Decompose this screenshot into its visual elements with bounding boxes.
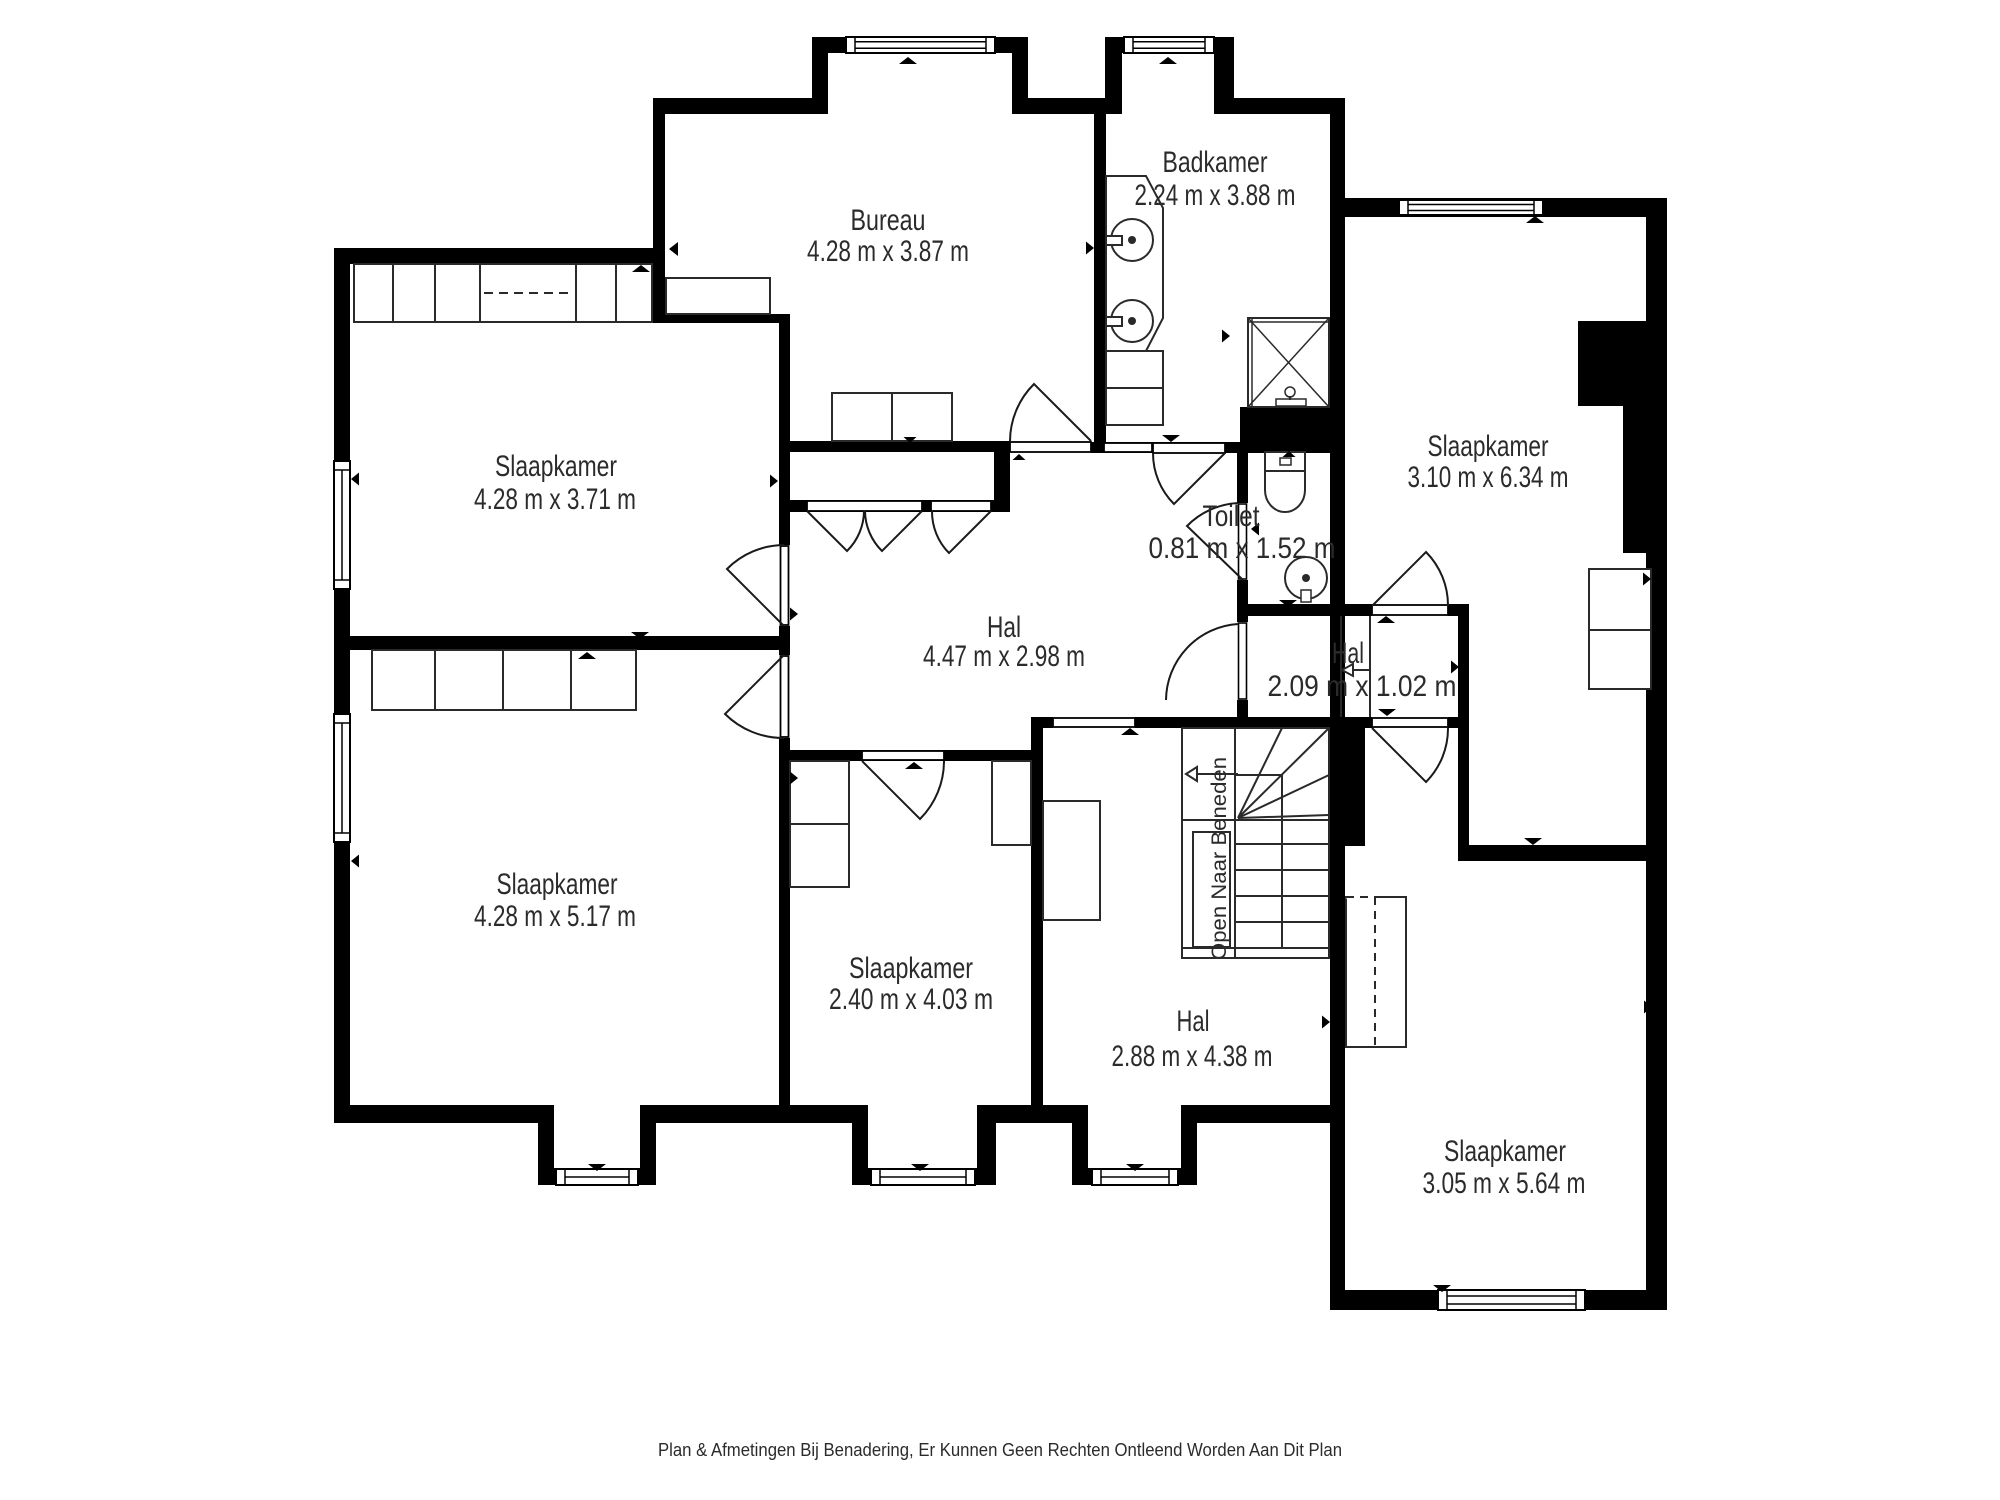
svg-text:Badkamer: Badkamer (1163, 146, 1268, 179)
svg-text:Slaapkamer: Slaapkamer (497, 868, 618, 901)
svg-text:Hal: Hal (1177, 1005, 1210, 1038)
svg-text:Hal: Hal (1332, 637, 1364, 670)
svg-text:2.40 m x 4.03 m: 2.40 m x 4.03 m (829, 983, 993, 1016)
svg-text:3.10 m x 6.34 m: 3.10 m x 6.34 m (1408, 461, 1569, 494)
svg-text:4.47 m x 2.98 m: 4.47 m x 2.98 m (923, 640, 1085, 673)
svg-text:Slaapkamer: Slaapkamer (495, 450, 617, 483)
svg-text:4.28 m x 5.17 m: 4.28 m x 5.17 m (474, 900, 636, 933)
svg-text:2.09 m x 1.02 m: 2.09 m x 1.02 m (1268, 670, 1457, 703)
svg-text:Slaapkamer: Slaapkamer (1428, 430, 1549, 463)
svg-text:2.24 m x 3.88 m: 2.24 m x 3.88 m (1135, 179, 1296, 212)
svg-text:Open Naar Beneden: Open Naar Beneden (1208, 757, 1231, 960)
svg-text:4.28 m x 3.71 m: 4.28 m x 3.71 m (474, 483, 636, 516)
svg-text:4.28 m x 3.87 m: 4.28 m x 3.87 m (807, 235, 969, 268)
svg-text:Slaapkamer: Slaapkamer (1444, 1135, 1566, 1168)
svg-text:Slaapkamer: Slaapkamer (849, 952, 973, 985)
svg-text:Toilet: Toilet (1203, 500, 1261, 533)
svg-text:2.88 m x 4.38 m: 2.88 m x 4.38 m (1112, 1040, 1273, 1073)
svg-text:0.81 m x 1.52 m: 0.81 m x 1.52 m (1149, 532, 1336, 565)
svg-text:Plan & Afmetingen Bij Benaderi: Plan & Afmetingen Bij Benadering, Er Kun… (658, 1440, 1342, 1460)
svg-text:3.05 m x 5.64 m: 3.05 m x 5.64 m (1423, 1167, 1586, 1200)
svg-text:Bureau: Bureau (851, 204, 926, 237)
